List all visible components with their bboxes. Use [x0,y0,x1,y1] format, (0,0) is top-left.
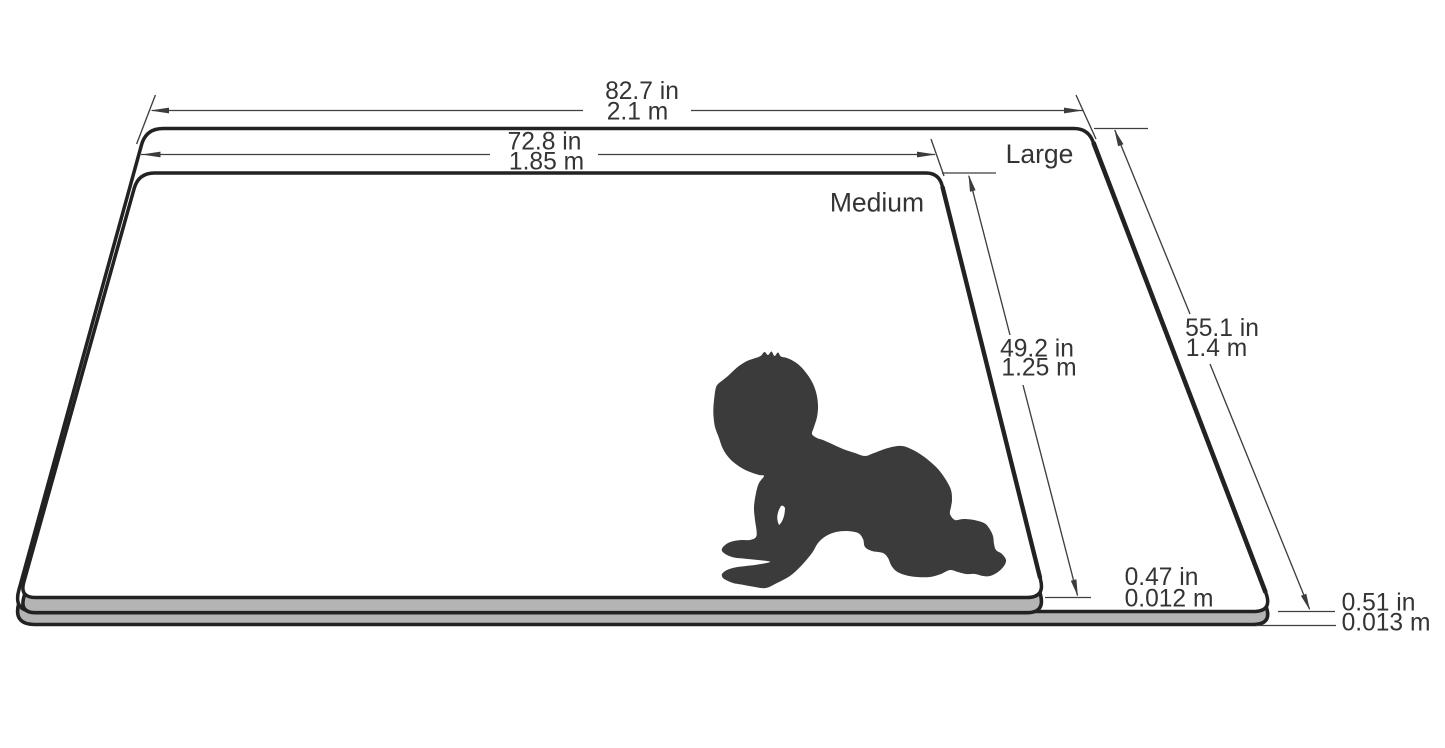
svg-text:1.25 m: 1.25 m [1001,355,1076,382]
svg-text:1.4 m: 1.4 m [1186,335,1248,362]
svg-text:0.012 m: 0.012 m [1125,586,1214,613]
svg-text:0.013 m: 0.013 m [1342,610,1431,637]
svg-text:1.85 m: 1.85 m [509,149,584,176]
svg-text:2.1 m: 2.1 m [607,99,669,126]
svg-text:Large: Large [1006,139,1074,169]
svg-text:Medium: Medium [830,188,924,218]
